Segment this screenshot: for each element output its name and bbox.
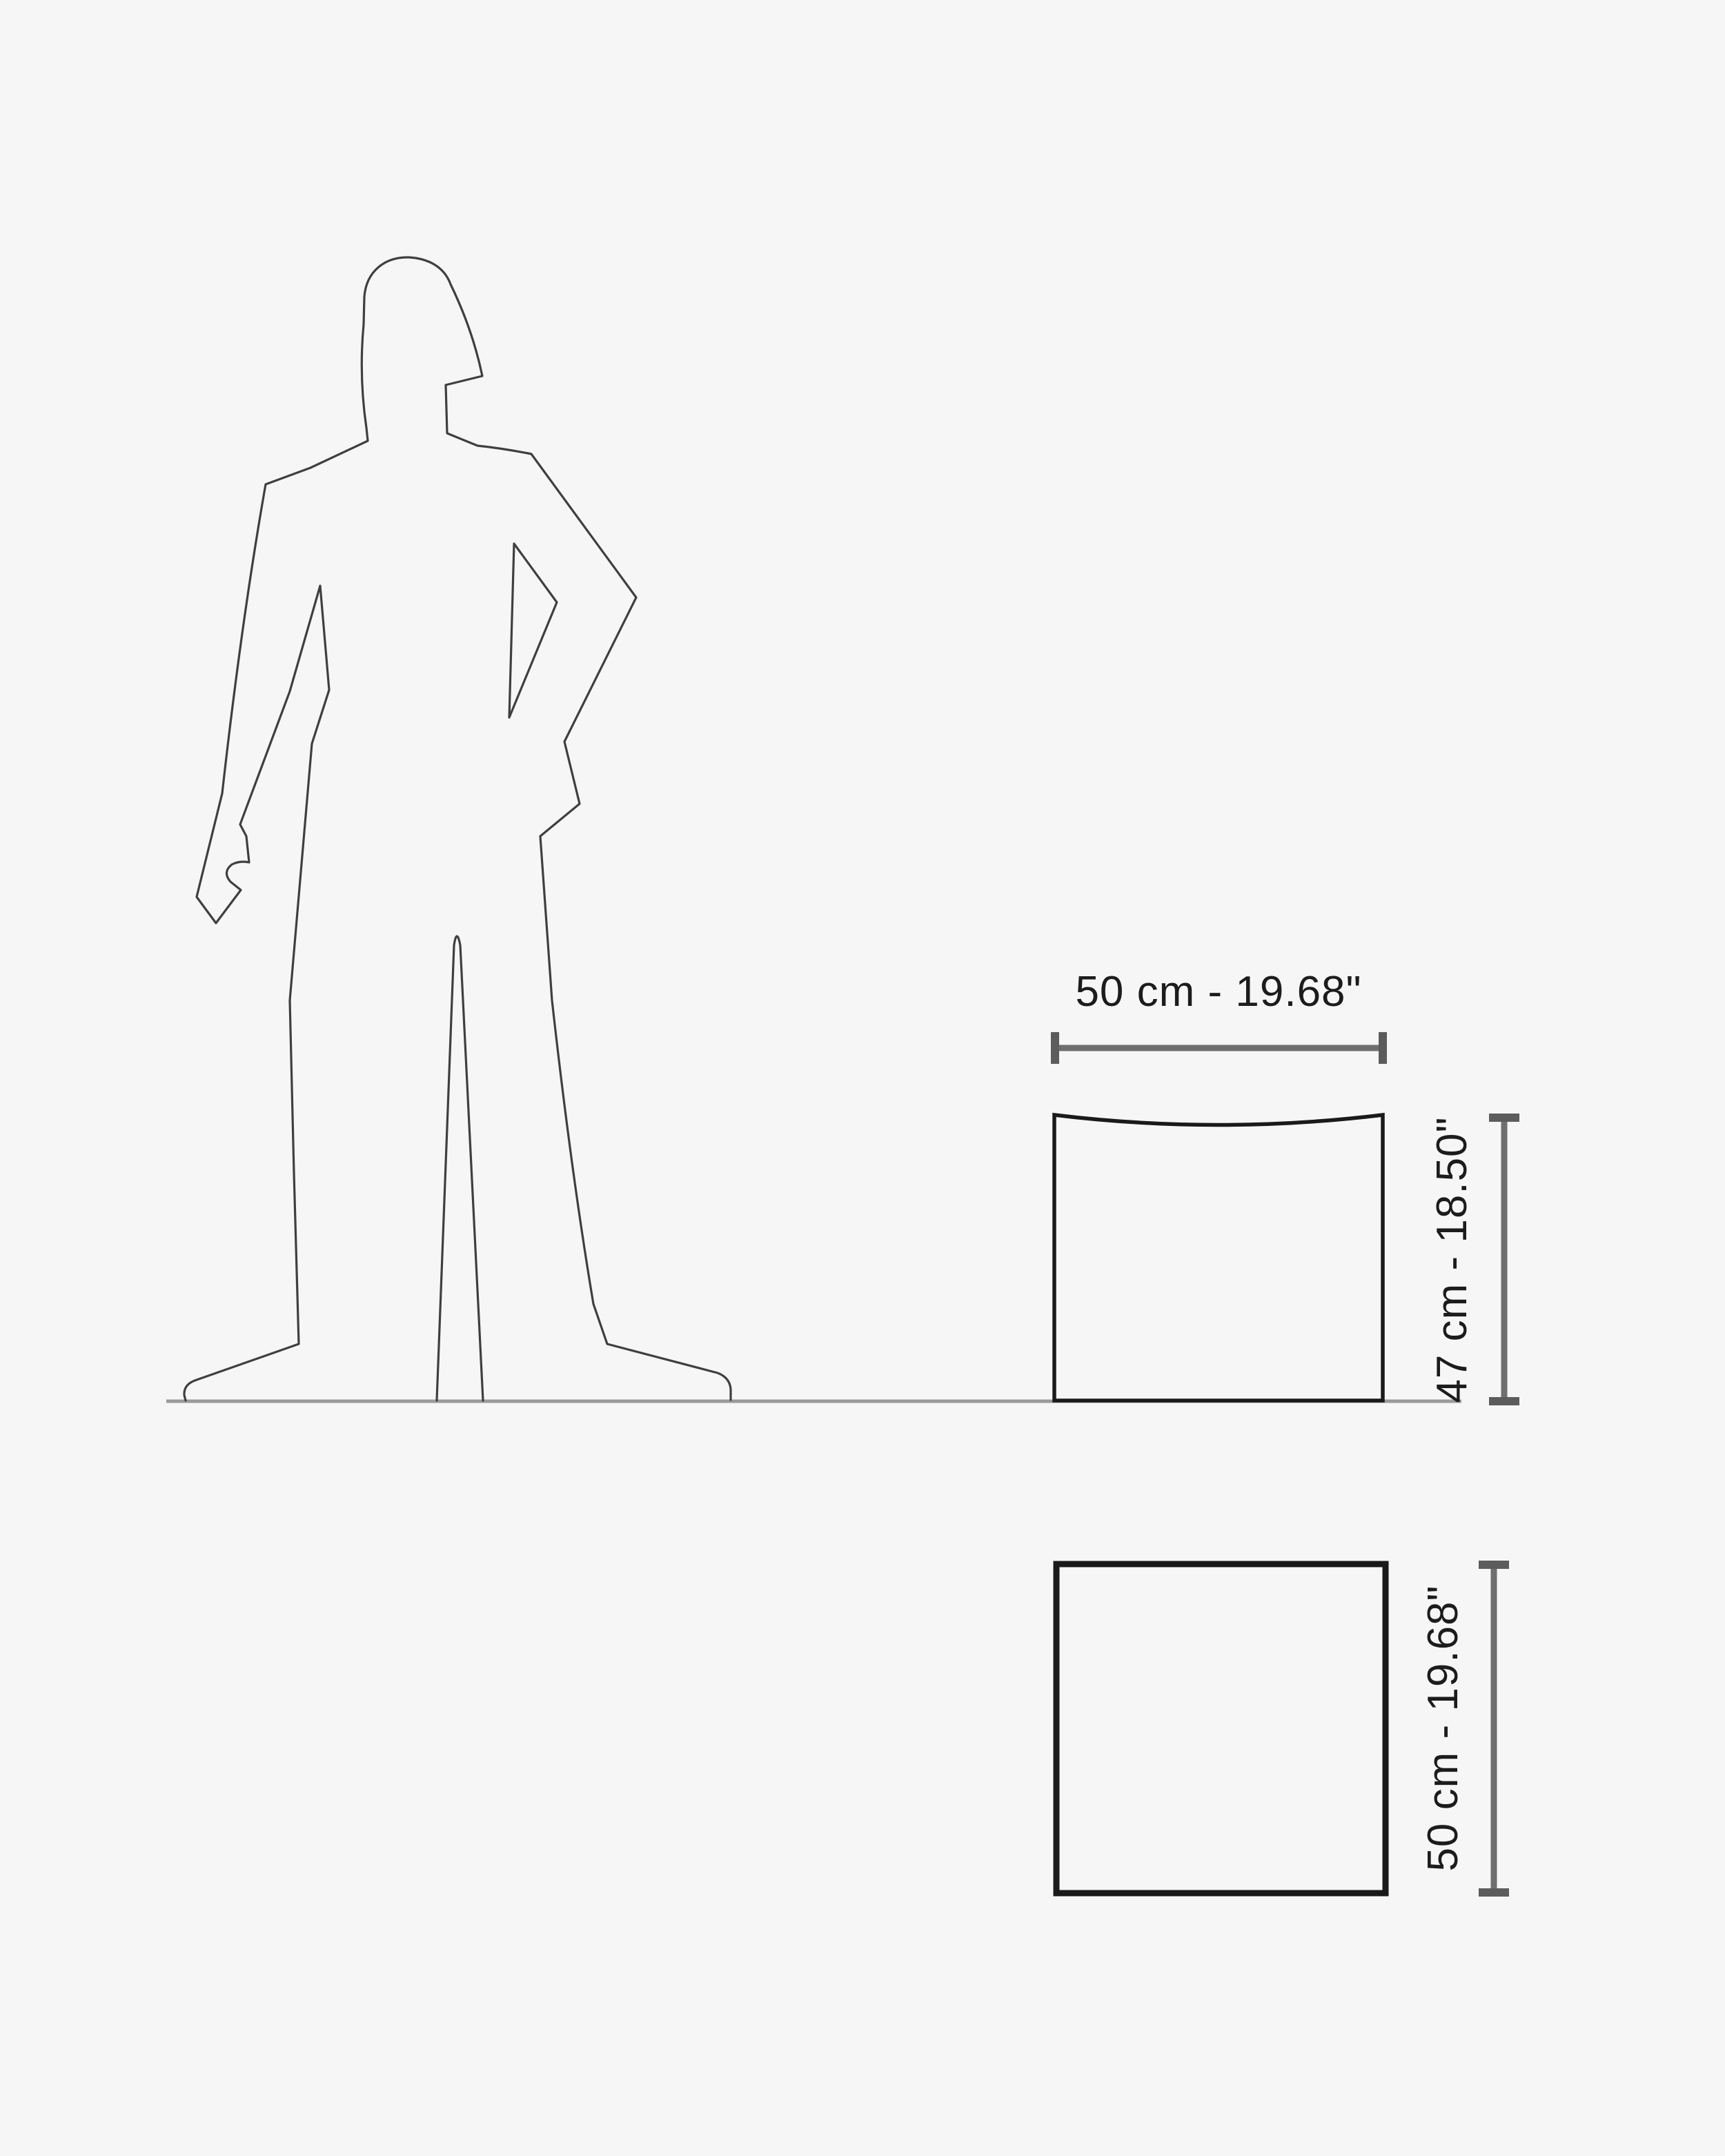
- person-arm-gap: [509, 544, 557, 718]
- dimension-diagram: 50 cm - 19.68" 47 cm - 18.50" 50 cm - 19…: [0, 0, 1725, 2156]
- depth-dimension-label: 50 cm - 19.68": [1416, 1487, 1471, 1970]
- height-dimension-label: 47 cm - 18.50": [1425, 1018, 1480, 1501]
- height-dimension-bar: [1489, 1118, 1519, 1401]
- depth-dimension-bar: [1479, 1565, 1509, 1892]
- width-dimension-label: 50 cm - 19.68": [977, 965, 1460, 1020]
- person-leg-gap: [437, 936, 483, 1401]
- top-view-outline: [1056, 1564, 1386, 1893]
- person-silhouette: [184, 257, 731, 1401]
- width-dimension-bar: [1055, 1032, 1383, 1064]
- front-view-outline: [1054, 1115, 1383, 1401]
